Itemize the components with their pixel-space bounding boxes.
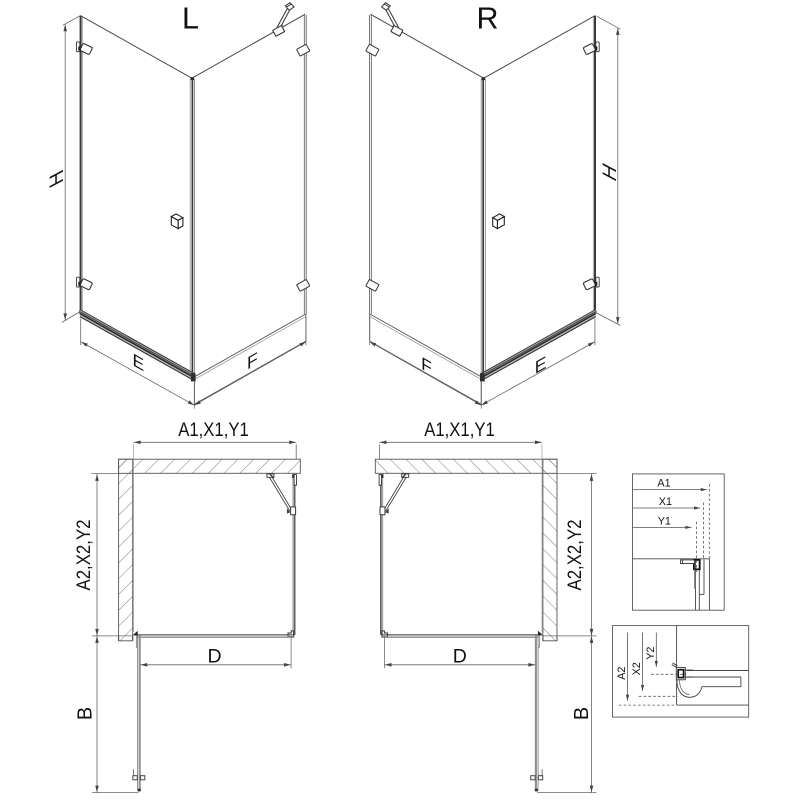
svg-text:X2: X2 — [631, 662, 643, 675]
svg-text:A1,X1,Y1: A1,X1,Y1 — [424, 419, 495, 441]
svg-text:R: R — [476, 2, 498, 36]
svg-text:X1: X1 — [659, 496, 672, 508]
svg-text:D: D — [208, 646, 222, 668]
svg-text:A2: A2 — [616, 667, 628, 680]
svg-text:D: D — [453, 646, 467, 668]
svg-text:Y1: Y1 — [658, 515, 671, 527]
svg-text:Y2: Y2 — [645, 647, 657, 660]
svg-text:B: B — [571, 707, 593, 720]
svg-text:H: H — [46, 166, 68, 192]
svg-text:E: E — [535, 352, 547, 378]
svg-text:A1,X1,Y1: A1,X1,Y1 — [178, 419, 249, 441]
svg-text:A2,X2,Y2: A2,X2,Y2 — [73, 520, 95, 591]
svg-text:L: L — [182, 2, 199, 36]
svg-text:B: B — [75, 707, 97, 720]
svg-text:F: F — [421, 353, 432, 379]
svg-text:A2,X2,Y2: A2,X2,Y2 — [564, 520, 586, 591]
svg-text:A1: A1 — [657, 477, 670, 489]
